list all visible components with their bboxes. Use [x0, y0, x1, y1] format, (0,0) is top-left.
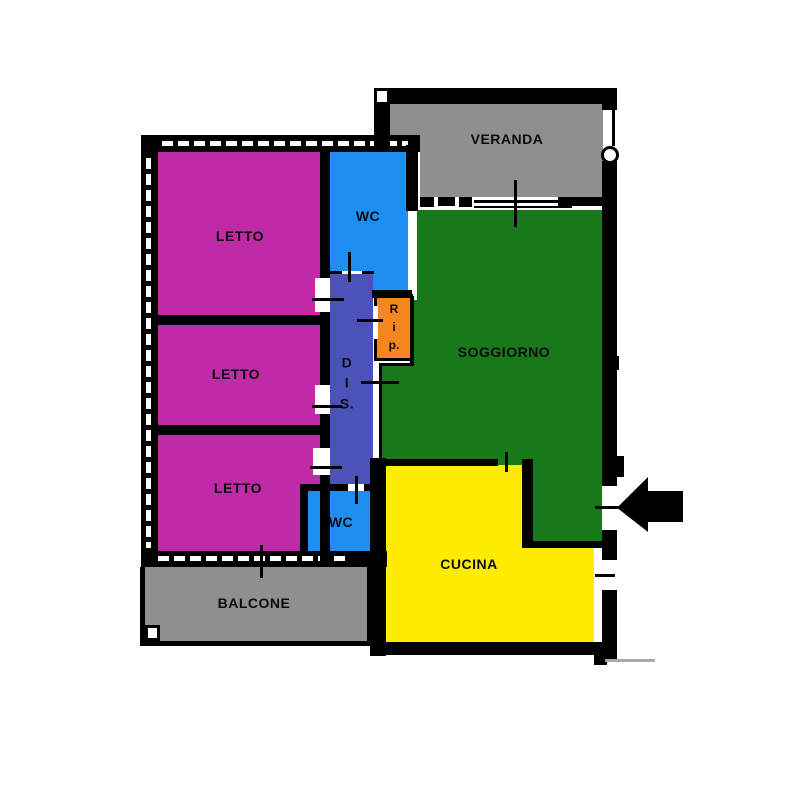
- door-gap-letto2: [315, 385, 330, 414]
- room-label-veranda: VERANDA: [471, 129, 544, 149]
- threshold-dash: [558, 197, 604, 206]
- wall-green-bottom: [522, 541, 604, 548]
- entrance-arrow-icon: [617, 477, 648, 532]
- threshold-line: [474, 206, 572, 208]
- room-label-dis: D I S.: [340, 353, 354, 414]
- room-veranda: [390, 103, 603, 197]
- wall-notch-vertical: [522, 459, 533, 548]
- line-green-left: [379, 363, 382, 467]
- room-label-rip: R i p.: [389, 300, 400, 354]
- room-label-letto-1: LETTO: [216, 226, 264, 246]
- door-tick-entrance: [595, 506, 620, 509]
- wall-letto2-letto3: [158, 425, 326, 435]
- column-box-balcone: [145, 625, 160, 641]
- wall-pilaster-2: [605, 456, 624, 477]
- wall-veranda-right-upper: [602, 88, 617, 110]
- wall-left-hatch: [146, 158, 151, 548]
- wall-letto1-letto2: [158, 315, 330, 325]
- wall-rooms-corridor: [320, 152, 330, 567]
- door-tick-balcone: [260, 545, 263, 578]
- door-tick-veranda: [514, 180, 517, 227]
- door-tick-dis-soggiorno: [361, 381, 399, 384]
- door-tick-wc-bottom: [355, 476, 358, 504]
- wall-green-yellow: [380, 459, 498, 466]
- wall-veranda-top: [374, 88, 617, 104]
- wall-wc2-left: [300, 484, 308, 554]
- door-tick-wc-top: [348, 252, 351, 282]
- room-label-balcone: BALCONE: [218, 593, 291, 613]
- line-green-notch-top: [379, 363, 413, 366]
- entrance-arrow-shaft: [646, 491, 683, 522]
- room-label-letto-3: LETTO: [214, 478, 262, 498]
- room-label-wc-top: WC: [356, 206, 380, 226]
- threshold-dash: [438, 197, 455, 206]
- line-rip-right: [410, 296, 414, 366]
- wall-top-hatch: [162, 141, 408, 146]
- floor-plan-image: VERANDA LETTO WC LETTO LETTO D I S. R i …: [0, 0, 800, 788]
- door-tick-letto1: [312, 298, 344, 301]
- door-gap-wc-top: [342, 271, 362, 274]
- room-label-letto-2: LETTO: [212, 364, 260, 384]
- door-tick-rip: [357, 319, 383, 322]
- wall-bottom-hatch: [158, 556, 346, 561]
- threshold-dash: [420, 197, 434, 207]
- door-gap-letto3: [313, 448, 330, 475]
- window-line-veranda: [612, 110, 615, 146]
- door-gap-rip: [373, 306, 378, 339]
- wall-cucina-bottom: [372, 642, 616, 655]
- threshold-dash: [459, 197, 472, 207]
- scan-line: [605, 659, 655, 662]
- room-label-soggiorno: SOGGIORNO: [458, 342, 550, 362]
- room-label-wc-bottom: WC: [329, 512, 353, 532]
- room-label-cucina: CUCINA: [440, 554, 497, 574]
- wall-wc-veranda: [406, 145, 418, 211]
- wall-veranda-right-lower: [602, 161, 617, 201]
- column-box-veranda: [374, 88, 390, 105]
- window-tick-right: [595, 574, 615, 577]
- door-tick-letto2: [312, 405, 342, 408]
- column-circle: [601, 146, 619, 164]
- door-tick-cucina: [505, 452, 508, 472]
- door-tick-letto3: [310, 466, 342, 469]
- door-gap-letto1: [315, 278, 330, 312]
- wall-wc-rip: [372, 290, 412, 298]
- wall-pilaster-1: [604, 356, 619, 370]
